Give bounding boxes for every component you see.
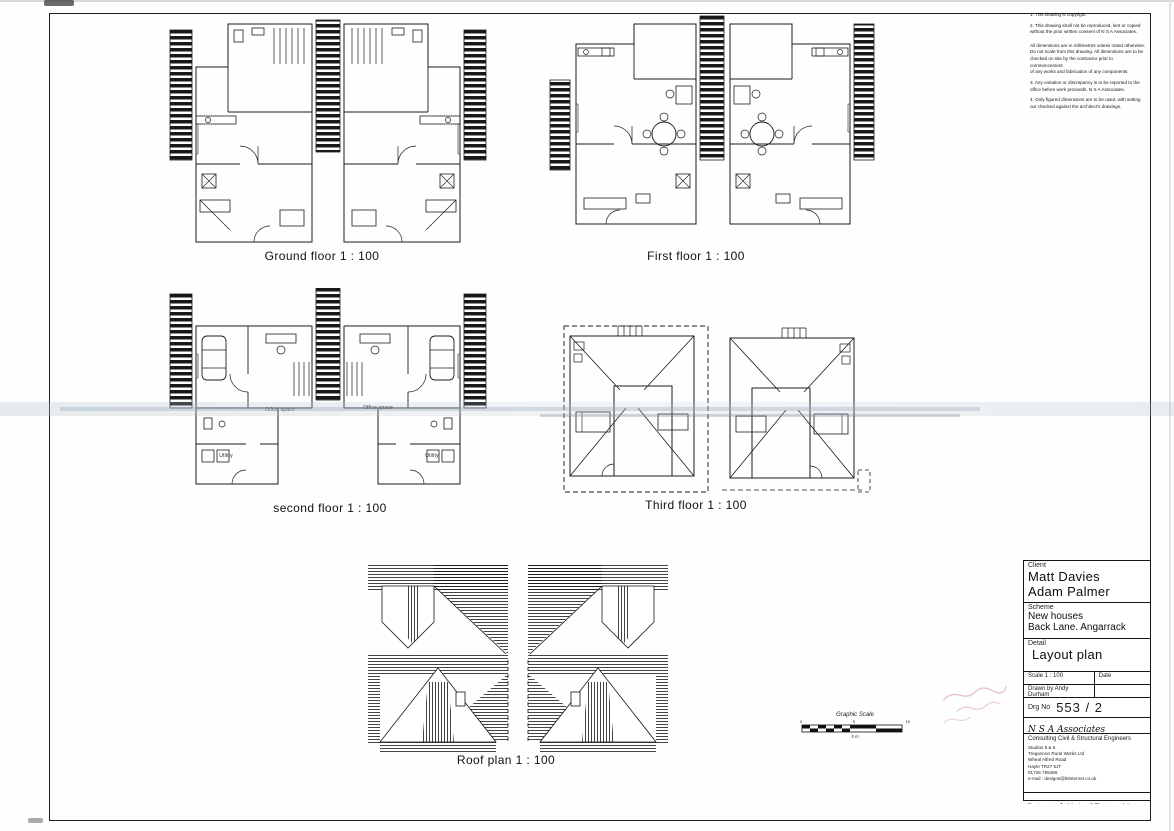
scheme-line-2: Back Lane. Angarrack (1028, 622, 1146, 633)
roof-plan-drawing (368, 564, 668, 756)
title-block-firm-name-section: N S A Associates (1024, 718, 1150, 734)
firm-email: e-mail : designs@btinternet.co.uk (1028, 776, 1146, 782)
client-name-2: Adam Palmer (1028, 584, 1146, 599)
notes-panel: 1. This drawing is copyright. 2. This dr… (1030, 12, 1146, 116)
room-label-office-right: Office space (348, 405, 408, 411)
graphic-scale-tick-left: 0 (800, 719, 802, 724)
drawn-row-empty-cell (1095, 685, 1150, 697)
note-item-1: 1. This drawing is copyright. (1030, 12, 1146, 19)
scheme-label: Scheme (1028, 604, 1146, 611)
scheme-line-1: New houses (1028, 611, 1146, 622)
title-block-scale-row: Scale 1 : 100 Date (1024, 672, 1150, 685)
detail-label: Detail (1028, 640, 1146, 647)
title-block-scheme-section: Scheme New houses Back Lane. Angarrack (1024, 603, 1150, 639)
drg-no-label: Drg No (1028, 704, 1050, 711)
title-block: Client Matt Davies Adam Palmer Scheme Ne… (1023, 560, 1151, 801)
scan-smudge-bottomleft (28, 818, 43, 823)
drg-no-value: 553 / 2 (1056, 700, 1103, 715)
scale-value: Scale 1 : 100 (1024, 672, 1095, 684)
title-block-drgno-section: Drg No 553 / 2 (1024, 698, 1150, 718)
plan-label-third-floor: Third floor 1 : 100 (596, 498, 796, 512)
detail-value: Layout plan (1028, 647, 1146, 662)
graphic-scale-tick-right: 10 (906, 719, 910, 724)
date-label: Date (1095, 672, 1150, 684)
plan-label-roof: Roof plan 1 : 100 (406, 753, 606, 767)
graphic-scale: Graphic Scale 0 5 10 5 m (800, 712, 910, 739)
room-label-office-left: Office space (250, 407, 310, 413)
firm-tagline: Consulting Civil & Structural Engineers (1028, 735, 1146, 743)
graphic-scale-caption: 5 m (800, 734, 910, 739)
plan-label-ground-floor: Ground floor 1 : 100 (222, 249, 422, 263)
drawn-by-value: Drawn by Andy Durham (1024, 685, 1095, 697)
third-floor-plan-drawing (562, 320, 872, 502)
note-item-2: 2. This drawing shall not be reproduced,… (1030, 23, 1146, 76)
client-name-1: Matt Davies (1028, 569, 1146, 584)
scan-edge-top (0, 0, 1174, 2)
graphic-scale-bar (800, 724, 904, 734)
title-block-firm-info-section: Consulting Civil & Structural Engineers … (1024, 734, 1150, 792)
graphic-scale-tick-mid: 5 (853, 719, 855, 724)
note-item-4: 4. Only figured dimensions are to be use… (1030, 97, 1146, 110)
ground-floor-plan-drawing (168, 12, 488, 248)
drawing-sheet: Ground floor 1 : 100 (0, 0, 1174, 831)
graphic-scale-title: Graphic Scale (800, 712, 910, 718)
scan-edge-right (1169, 0, 1171, 831)
title-block-client-section: Client Matt Davies Adam Palmer (1024, 561, 1150, 603)
client-label: Client (1028, 562, 1146, 569)
red-stamp (936, 678, 1028, 731)
plan-label-second-floor: second floor 1 : 100 (230, 501, 430, 515)
scan-smudge-topleft (44, 0, 74, 6)
firm-footer-text: Engineering, Architecture & Planning sol… (1028, 803, 1139, 804)
plan-label-first-floor: First floor 1 : 100 (596, 249, 796, 263)
firm-name: N S A Associates (1028, 725, 1105, 734)
second-floor-plan-drawing (168, 288, 488, 496)
title-block-footer: Engineering, Architecture & Planning sol… (1024, 792, 1150, 804)
title-block-detail-section: Detail Layout plan (1024, 639, 1150, 672)
note-item-3: 3. Any variation or discrepancy is to be… (1030, 80, 1146, 93)
title-block-drawn-row: Drawn by Andy Durham (1024, 685, 1150, 698)
first-floor-plan-drawing (548, 10, 878, 250)
room-label-utility-left: Utility (206, 453, 246, 459)
room-label-utility-right: Utility (412, 453, 452, 459)
